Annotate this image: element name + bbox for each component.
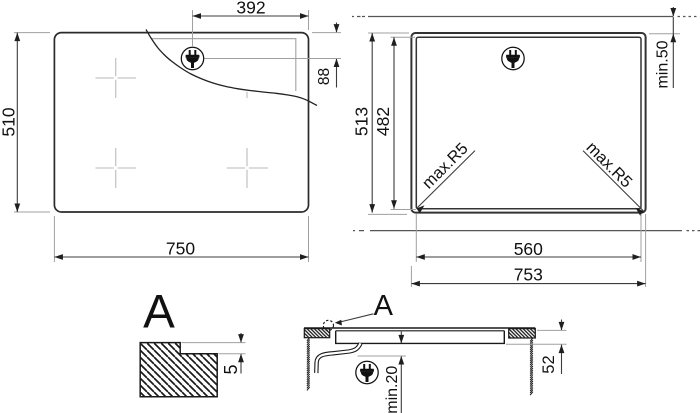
svg-text:560: 560 xyxy=(514,239,543,259)
svg-text:753: 753 xyxy=(514,265,543,285)
svg-text:510: 510 xyxy=(0,107,19,136)
svg-text:max.R5: max.R5 xyxy=(419,140,472,193)
svg-text:482: 482 xyxy=(373,107,393,136)
svg-text:A: A xyxy=(374,290,394,322)
svg-text:88: 88 xyxy=(316,68,333,85)
svg-text:A: A xyxy=(143,286,175,339)
svg-text:5: 5 xyxy=(221,364,241,374)
svg-text:min.20: min.20 xyxy=(384,366,401,413)
svg-text:750: 750 xyxy=(166,239,195,259)
svg-text:max.R5: max.R5 xyxy=(583,139,636,192)
svg-text:52: 52 xyxy=(540,355,558,373)
svg-text:513: 513 xyxy=(352,107,372,136)
svg-text:392: 392 xyxy=(236,0,265,18)
svg-text:min.50: min.50 xyxy=(655,40,672,88)
